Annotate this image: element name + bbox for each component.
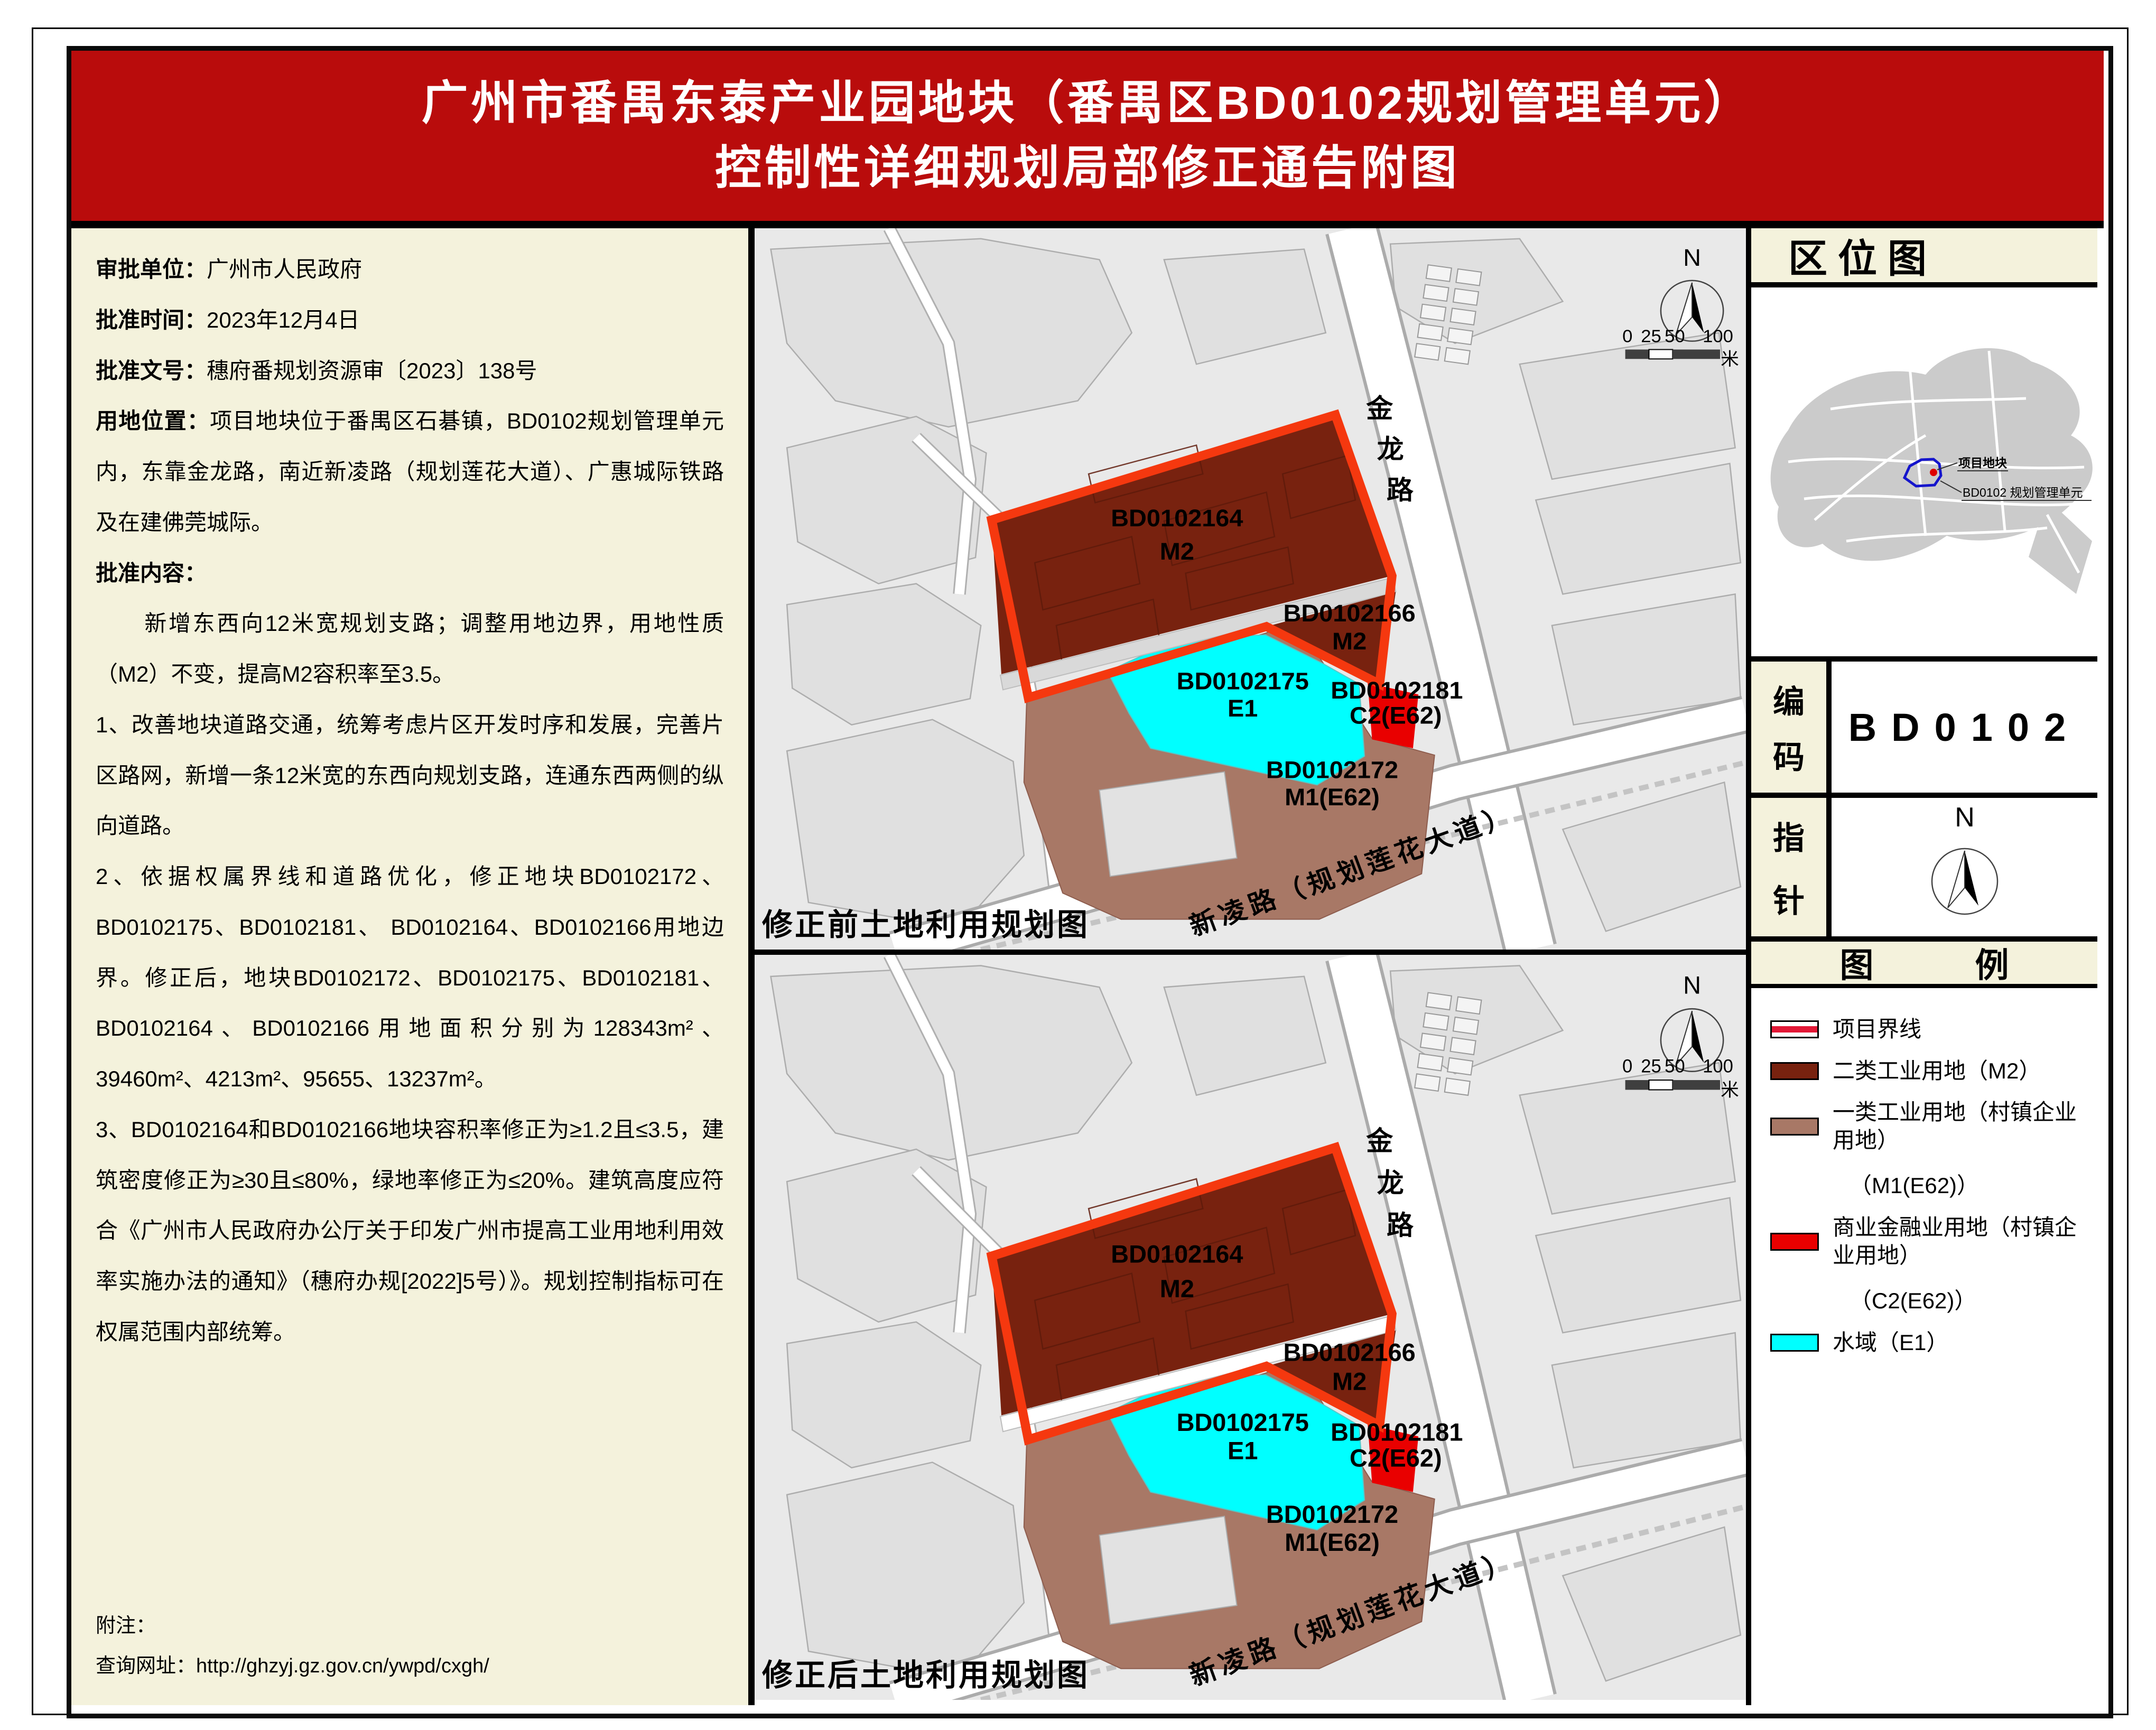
info-location: 用地位置：项目地块位于番禺区石碁镇，BD0102规划管理单元内，东靠金龙路，南近… [96,396,724,547]
legend-label-m1-line2: （M1(E62)） [1850,1168,2097,1200]
label-bd0102172-code: M1(E62) [1285,1528,1380,1556]
compass-char-2: 针 [1773,876,1805,922]
legend-label-water: 水域（E1） [1833,1329,1948,1357]
label-bd0102164-code: M2 [1160,538,1194,565]
label-bd0102181-code: C2(E62) [1350,702,1442,729]
label-bd0102166-code: M2 [1332,1367,1367,1395]
info-paragraph-1: 1、改善地块道路交通，统筹考虑片区开发时序和发展，完善片区路网，新增一条12米宽… [96,700,724,851]
compass-row: 指 针 N [1751,798,2097,942]
label-bd0102172: BD0102172 [1266,756,1398,783]
content-area: 广州市番禺东泰产业园地块（番禺区BD0102规划管理单元） 控制性详细规划局部修… [71,51,2104,1705]
jinlong-char-3: 路 [1387,476,1414,505]
approval-info-text: 审批单位：广州市人民政府 批准时间：2023年12月4日 批准文号：穗府番规划资… [96,244,724,1357]
excluded-parcel [1100,772,1237,877]
legend-label-c2-line2: （C2(E62)） [1850,1283,2097,1315]
info-location-label: 用地位置： [96,408,210,433]
notice-sheet: 广州市番禺东泰产业园地块（番禺区BD0102规划管理单元） 控制性详细规划局部修… [0,0,2156,1730]
info-paragraph-3: 3、BD0102164和BD0102166地块容积率修正为≥1.2且≤3.5，建… [96,1104,724,1357]
scale-25: 25 [1641,327,1661,346]
label-bd0102175: BD0102175 [1177,667,1309,694]
footnote-label: 附注： [96,1606,489,1646]
info-date-value: 2023年12月4日 [207,308,360,332]
water-swatch-icon [1770,1334,1819,1352]
legend-item-water: 水域（E1） [1770,1329,2097,1357]
location-map: 项目地块 BD0102 规划管理单元 [1751,287,2097,662]
page-title-line1: 广州市番禺东泰产业园地块（番禺区BD0102规划管理单元） [422,78,1754,129]
legend-label-boundary: 项目界线 [1833,1016,1921,1044]
location-map-title: 区位图 [1751,228,2097,287]
scale-25: 25 [1641,1057,1661,1077]
north-letter: N [1683,971,1701,999]
approval-info-panel: 审批单位：广州市人民政府 批准时间：2023年12月4日 批准文号：穗府番规划资… [71,228,755,1705]
scale-100: 100 [1703,327,1733,346]
label-bd0102166: BD0102166 [1283,1338,1415,1366]
map-before-revision: BD0102164 M2 BD0102166 M2 BD0102175 E1 B… [755,228,1746,955]
code-row: 编 码 BD0102 [1751,662,2097,798]
legend-item-boundary: 项目界线 [1770,1016,2097,1044]
compass-char-1: 指 [1773,813,1805,859]
legend-item-c2: 商业金融业用地（村镇企业用地） [1770,1214,2097,1269]
c2-swatch-icon [1770,1233,1819,1251]
project-site-dot [1930,469,1937,476]
legend-label-m1: 一类工业用地（村镇企业用地） [1833,1099,2097,1154]
unit-code: BD0102 [1848,705,2081,750]
compass-cell: N [1832,798,2097,936]
m2-swatch-icon [1770,1062,1819,1080]
label-bd0102164: BD0102164 [1111,1240,1243,1268]
scale-0: 0 [1622,1057,1632,1077]
info-docno: 批准文号：穗府番规划资源审〔2023〕138号 [96,346,724,396]
legend-item-m1: 一类工业用地（村镇企业用地） [1770,1099,2097,1154]
m1-swatch-icon [1770,1118,1819,1136]
info-date: 批准时间：2023年12月4日 [96,295,724,346]
map-after-canvas: BD0102164 M2 BD0102166 M2 BD0102175 E1 B… [755,955,1746,1700]
scale-0: 0 [1622,327,1632,346]
compass-icon: N [1901,801,2028,933]
location-map-canvas: 项目地块 BD0102 规划管理单元 [1751,287,2097,656]
scale-100: 100 [1703,1057,1733,1077]
legend-label-m2: 二类工业用地（M2） [1833,1057,2041,1085]
compass-north-letter: N [1955,802,1975,833]
jinlong-char-1: 金 [1365,1126,1393,1156]
info-approver: 审批单位：广州市人民政府 [96,244,724,295]
map-before-caption: 修正前土地利用规划图 [762,900,1090,944]
code-char-2: 码 [1773,732,1805,778]
page-title-line2: 控制性详细规划局部修正通告附图 [715,143,1460,194]
label-bd0102181-code: C2(E62) [1350,1444,1442,1472]
label-bd0102175-code: E1 [1228,694,1258,721]
info-content-label: 批准内容： [96,548,724,599]
label-bd0102181: BD0102181 [1331,1418,1463,1446]
code-value-cell: BD0102 [1832,662,2097,793]
footnote: 附注： 查询网址：http://ghzyj.gz.gov.cn/ywpd/cxg… [96,1606,489,1686]
compass-label-cell: 指 针 [1751,798,1832,936]
scale-50: 50 [1665,327,1685,346]
info-paragraph-2: 2、依据权属界线和道路优化，修正地块BD0102172、BD0102175、BD… [96,851,724,1104]
right-panel: 区位图 [1751,228,2097,1705]
unit-label: BD0102 规划管理单元 [1963,486,2083,499]
label-bd0102166-code: M2 [1332,628,1367,655]
info-docno-label: 批准文号： [96,358,207,383]
map-after-caption: 修正后土地利用规划图 [762,1650,1090,1695]
label-bd0102172: BD0102172 [1266,1500,1398,1528]
scale-50: 50 [1665,1057,1685,1077]
scale-unit: 米 [1721,1081,1739,1101]
map-before-canvas: BD0102164 M2 BD0102166 M2 BD0102175 E1 B… [755,228,1746,950]
jinlong-char-1: 金 [1365,394,1393,423]
code-label-cell: 编 码 [1751,662,1832,793]
label-bd0102166: BD0102166 [1283,599,1415,626]
title-banner: 广州市番禺东泰产业园地块（番禺区BD0102规划管理单元） 控制性详细规划局部修… [71,51,2104,228]
scale-unit: 米 [1721,350,1739,369]
excluded-parcel [1100,1517,1237,1624]
label-bd0102181: BD0102181 [1331,677,1463,704]
info-approver-label: 审批单位： [96,257,207,282]
label-bd0102164: BD0102164 [1111,504,1243,531]
legend-item-m2: 二类工业用地（M2） [1770,1057,2097,1085]
site-label: 项目地块 [1958,456,2007,470]
legend: 项目界线 二类工业用地（M2） 一类工业用地（村镇企业用地） （M1(E62)）… [1751,988,2097,1705]
label-bd0102175: BD0102175 [1177,1408,1309,1436]
info-approver-value: 广州市人民政府 [207,257,362,282]
map-after-revision: BD0102164 M2 BD0102166 M2 BD0102175 E1 B… [755,955,1746,1700]
legend-title: 图 例 [1751,942,2097,988]
info-paragraph-0: 新增东西向12米宽规划支路；调整用地边界，用地性质（M2）不变，提高M2容积率至… [96,598,724,700]
label-bd0102175-code: E1 [1228,1436,1258,1464]
maps-column: BD0102164 M2 BD0102166 M2 BD0102175 E1 B… [755,228,1751,1705]
jinlong-char-2: 龙 [1377,1168,1404,1198]
info-date-label: 批准时间： [96,308,207,332]
jinlong-char-3: 路 [1387,1210,1414,1240]
label-bd0102164-code: M2 [1160,1275,1194,1303]
jinlong-char-2: 龙 [1377,435,1404,464]
label-bd0102172-code: M1(E62) [1285,784,1380,811]
info-docno-value: 穗府番规划资源审〔2023〕138号 [207,358,537,383]
code-char-1: 编 [1773,676,1805,722]
footnote-url: 查询网址：http://ghzyj.gz.gov.cn/ywpd/cxgh/ [96,1646,489,1686]
legend-label-c2: 商业金融业用地（村镇企业用地） [1833,1214,2097,1269]
boundary-swatch-icon [1770,1020,1819,1038]
north-letter: N [1683,244,1701,271]
